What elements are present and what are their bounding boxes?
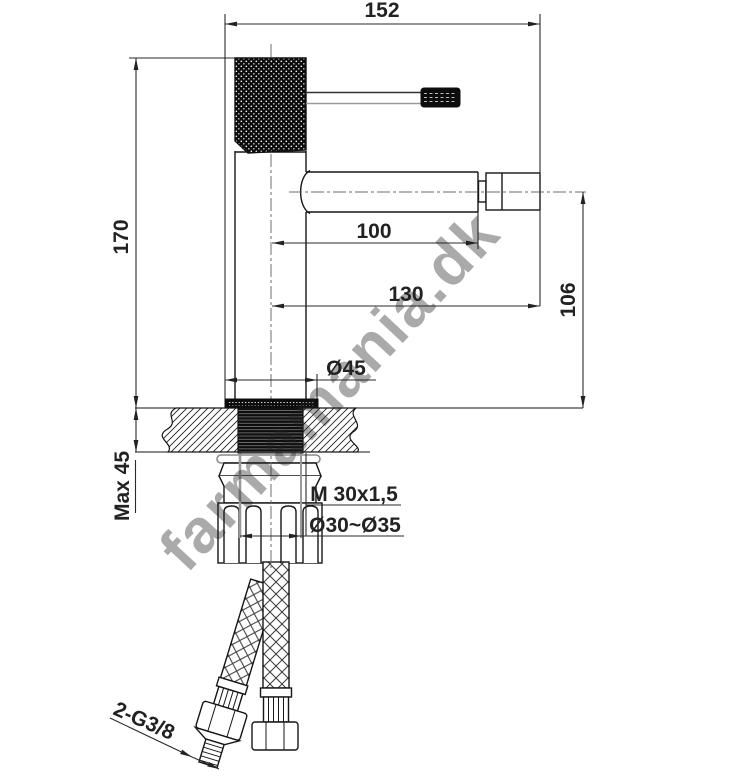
hose-braid-vertical	[263, 562, 289, 688]
dim-body-height-label: 170	[110, 219, 133, 254]
hose-collar-vertical	[261, 688, 292, 697]
counter-left-section	[162, 408, 238, 452]
threaded-nipple	[199, 739, 224, 768]
technical-drawing-page: 152 170 100 130 106 Max 45 Ø45 M 30x1,5 …	[0, 0, 735, 779]
faucet-dimension-drawing: 152 170 100 130 106 Max 45 Ø45 M 30x1,5 …	[0, 0, 735, 779]
dim-hole-range-label: Ø30~Ø35	[309, 514, 401, 537]
knurled-handle-head	[235, 58, 306, 153]
dim-spout-height-label: 106	[557, 282, 580, 317]
dim-supply-thread-label: 2-G3/8	[110, 698, 178, 745]
dim-max-deck-label: Max 45	[111, 451, 134, 521]
faucet-outline-layer	[135, 151, 583, 771]
crown-slot	[281, 506, 296, 563]
dim-spout-reach-label: 100	[356, 220, 391, 243]
hose-hex-nut-vertical	[252, 722, 298, 750]
dim-mounting-thread-label: M 30x1,5	[310, 483, 398, 506]
dim-overall-width-label: 152	[364, 0, 399, 22]
hose-ribbed-vertical	[264, 697, 289, 722]
